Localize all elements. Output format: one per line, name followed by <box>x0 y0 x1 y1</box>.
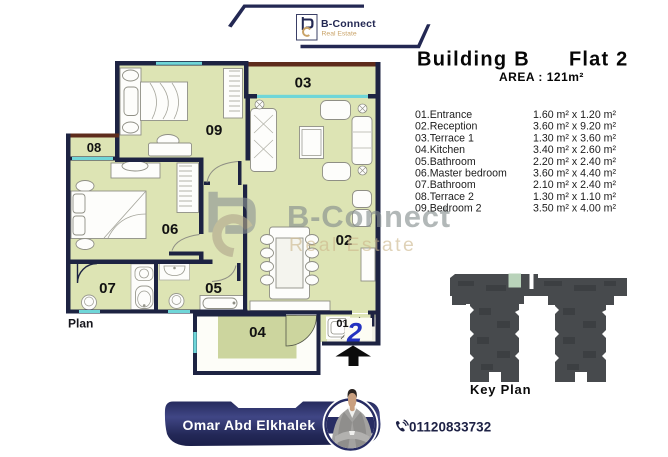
svg-text:08: 08 <box>87 140 101 155</box>
svg-text:Key Plan: Key Plan <box>470 382 531 397</box>
svg-text:Building B: Building B <box>417 49 530 71</box>
svg-text:Real Estate: Real Estate <box>322 31 357 38</box>
svg-text:06: 06 <box>162 221 179 238</box>
svg-text:B-Connect: B-Connect <box>321 18 376 30</box>
svg-text:05: 05 <box>205 280 222 297</box>
svg-text:AREA : 121m²: AREA : 121m² <box>499 70 584 84</box>
svg-text:Flat 2: Flat 2 <box>569 49 628 71</box>
svg-text:Real Estate: Real Estate <box>289 234 416 256</box>
svg-text:03: 03 <box>295 75 312 92</box>
svg-text:01120833732: 01120833732 <box>409 420 491 435</box>
svg-text:Plan: Plan <box>68 317 93 331</box>
svg-text:2: 2 <box>346 318 362 348</box>
svg-text:07: 07 <box>99 280 116 297</box>
svg-text:1.60 m² x 1.20 m²3.60 m² x 9.2: 1.60 m² x 1.20 m²3.60 m² x 9.20 m²1.30 m… <box>533 109 616 215</box>
svg-text:04: 04 <box>249 324 266 341</box>
svg-text:09: 09 <box>206 122 223 139</box>
svg-text:Omar Abd Elkhalek: Omar Abd Elkhalek <box>183 417 316 433</box>
